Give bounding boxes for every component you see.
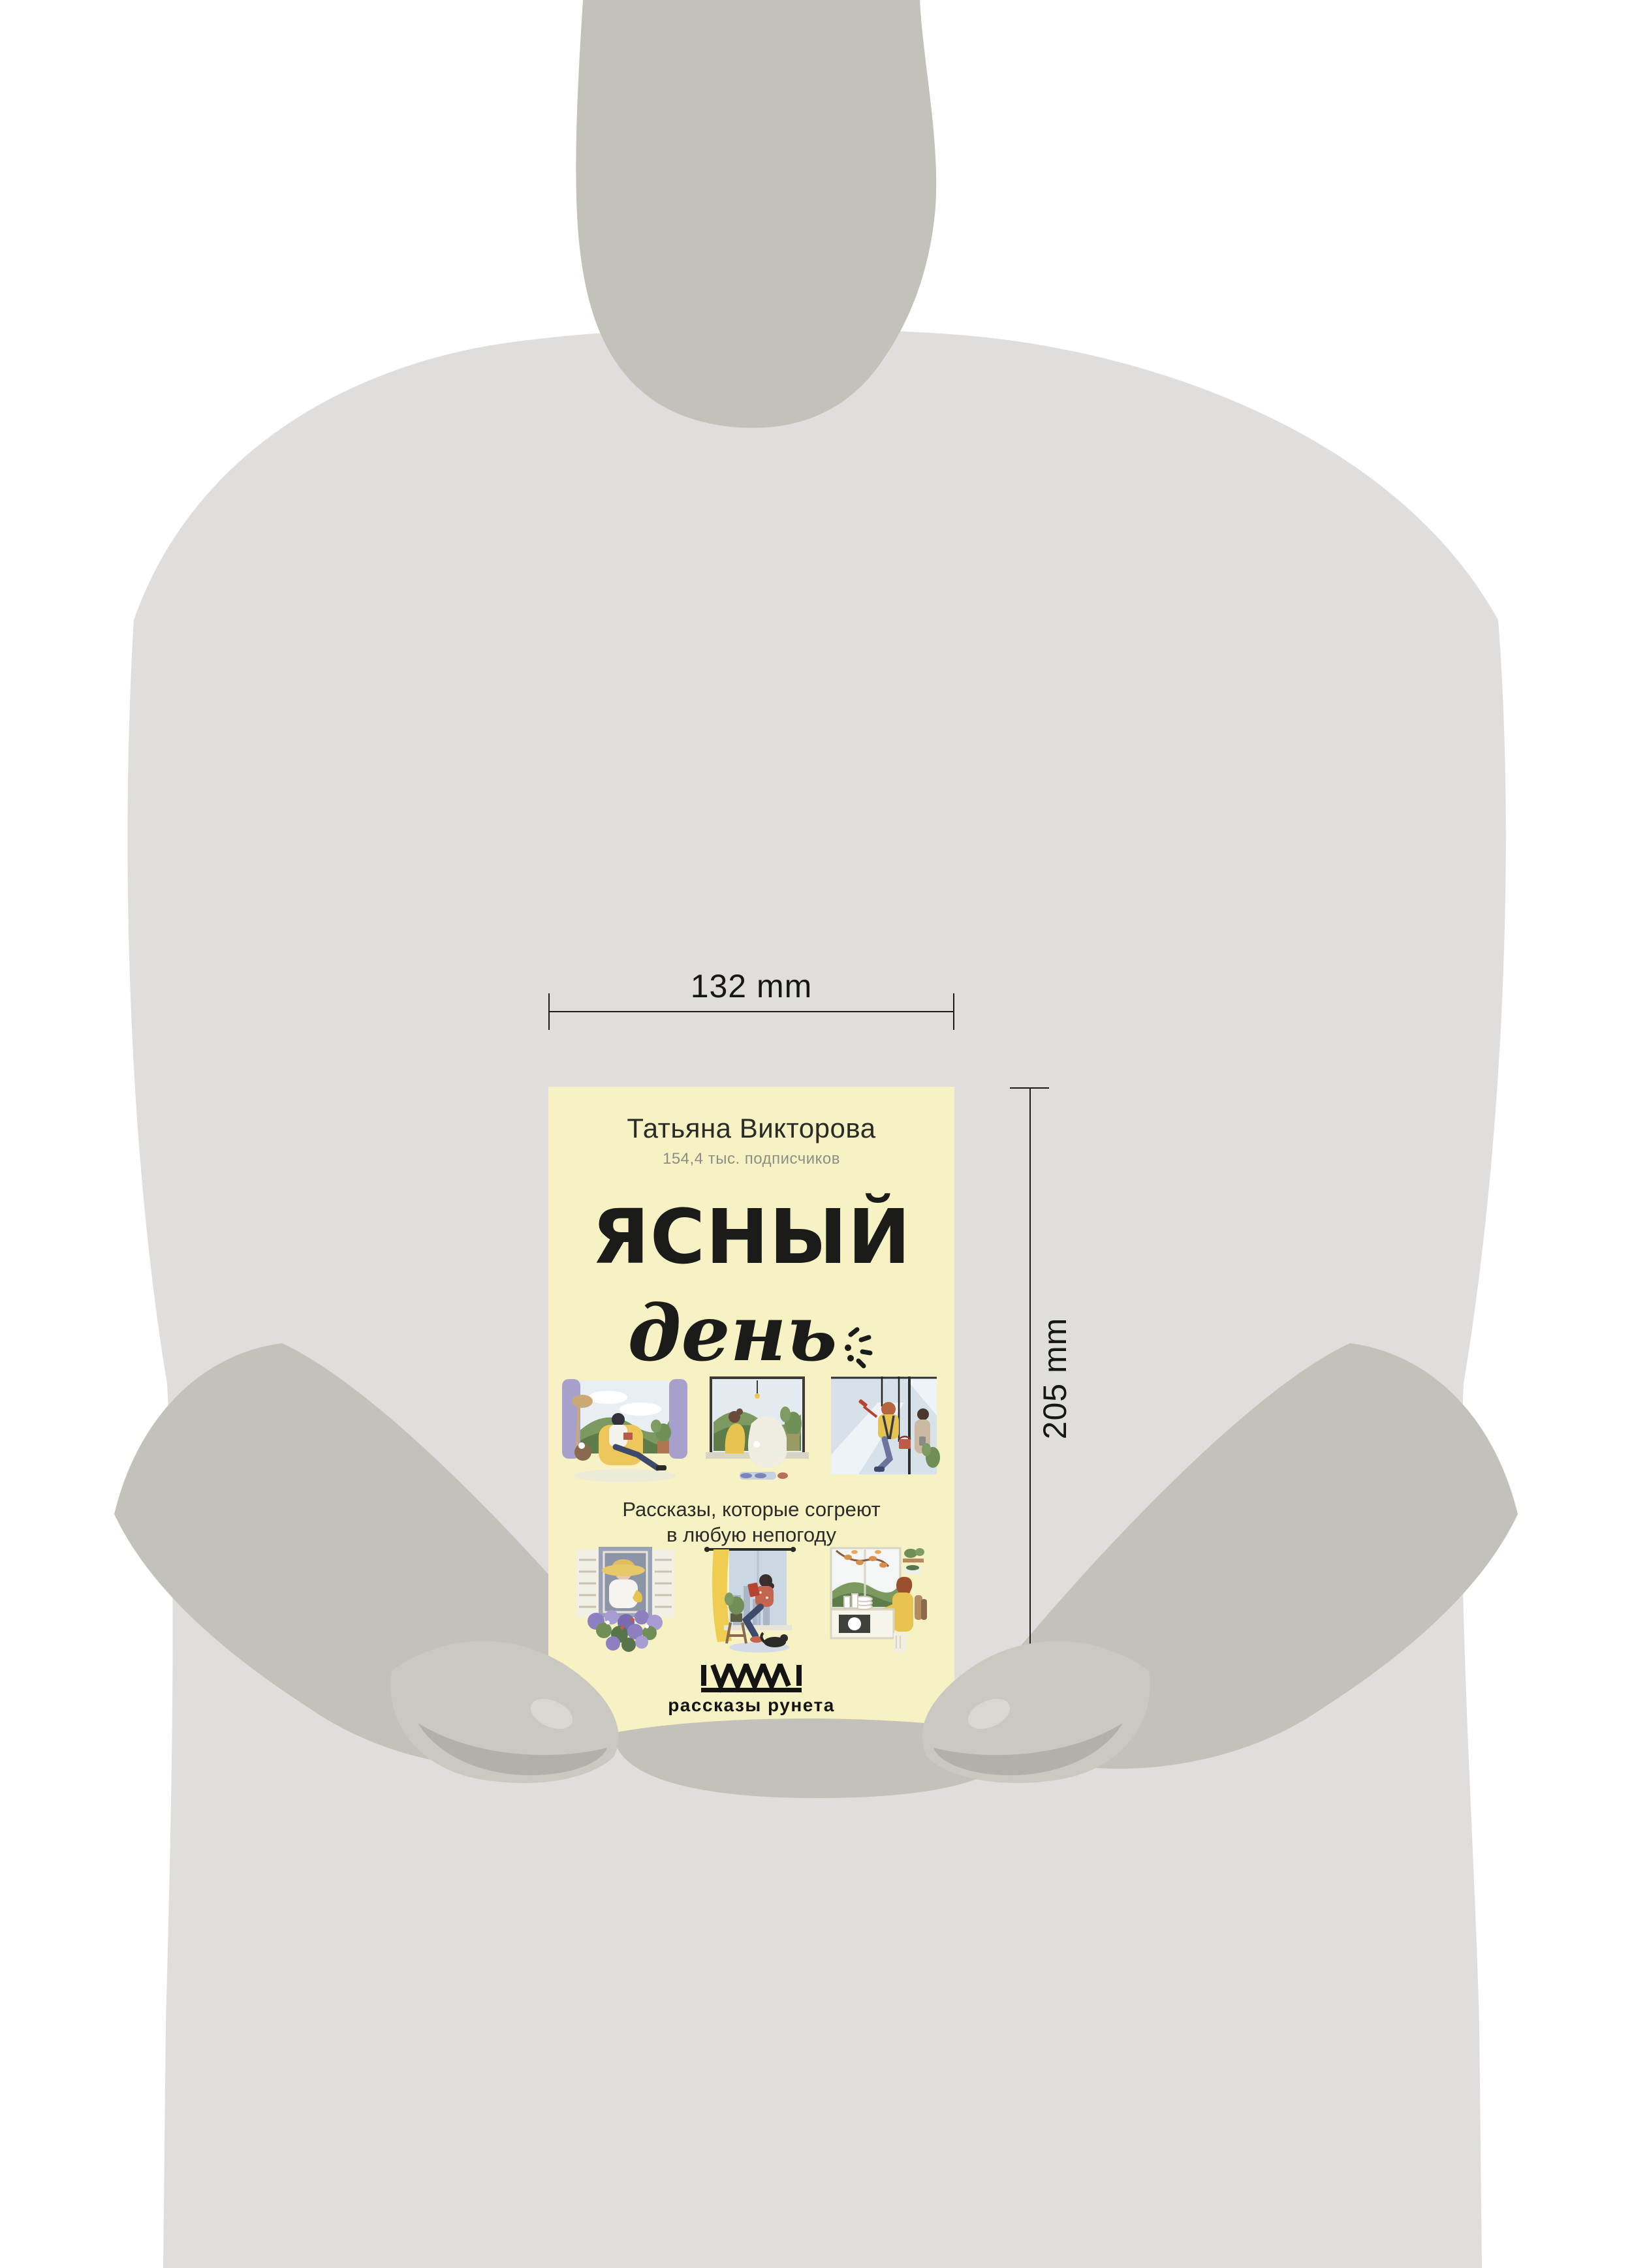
hands-holding-book — [0, 0, 1632, 2268]
product-size-visualization: 132 mm 205 mm 357 g Татьяна Викторова 15… — [0, 0, 1632, 2268]
